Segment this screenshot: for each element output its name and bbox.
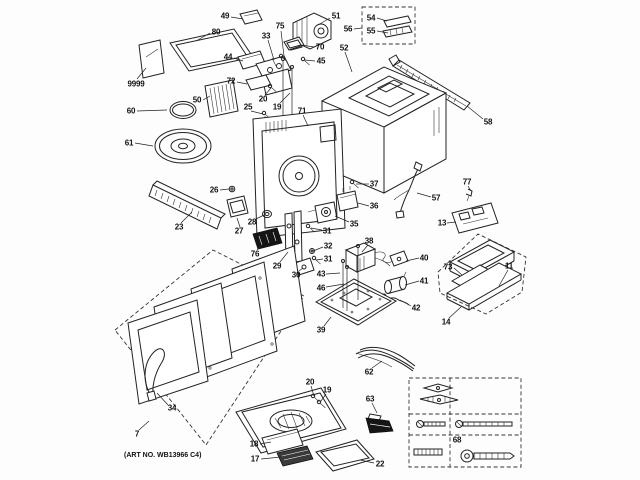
callout-77: 77 — [463, 178, 472, 187]
callout-71: 71 — [298, 107, 307, 116]
callout-7: 7 — [135, 430, 139, 439]
callout-46: 46 — [317, 284, 326, 293]
callout-50: 50 — [193, 96, 202, 105]
callout-54: 54 — [367, 14, 376, 23]
callout-42: 42 — [412, 304, 421, 313]
callout-30: 30 — [292, 271, 301, 280]
callout-14: 14 — [442, 318, 451, 327]
callout-55: 55 — [367, 27, 376, 36]
nut-26 — [229, 186, 235, 192]
frame-27 — [227, 196, 248, 217]
filter-tray-22 — [316, 440, 374, 471]
toggle-anchor-icon — [420, 384, 458, 404]
callout-45: 45 — [317, 57, 326, 66]
short-screw-icon — [417, 421, 446, 428]
callout-19-bottom: 19 — [323, 386, 332, 395]
callout-31-upper: 31 — [323, 227, 332, 236]
callout-19-top: 19 — [273, 103, 282, 112]
callout-36: 36 — [370, 202, 379, 211]
callout-20-top: 20 — [259, 95, 268, 104]
callout-43: 43 — [317, 270, 326, 279]
callout-32: 32 — [324, 242, 333, 251]
callout-60: 60 — [127, 107, 136, 116]
callout-51: 51 — [332, 12, 341, 21]
callout-70: 70 — [316, 43, 325, 52]
transformer-38 — [346, 243, 393, 272]
callout-80: 80 — [212, 28, 221, 37]
art-number: (ART NO. WB13966 C4) — [124, 452, 201, 459]
callout-29: 29 — [273, 262, 282, 271]
turntable-tray-61 — [155, 129, 211, 163]
callout-63: 63 — [366, 395, 375, 404]
callout-13: 13 — [438, 219, 447, 228]
callout-40: 40 — [420, 254, 429, 263]
callout-58: 58 — [484, 118, 493, 127]
callout-9999: 9999 — [128, 80, 145, 89]
callout-57: 57 — [432, 194, 441, 203]
callout-37: 37 — [370, 180, 379, 189]
control-board-13 — [452, 203, 498, 233]
cover-plate-49 — [240, 10, 262, 24]
callout-28: 28 — [248, 218, 257, 227]
wedge-63 — [366, 414, 393, 433]
vent-grille-50 — [205, 80, 238, 117]
callout-52: 52 — [340, 44, 349, 53]
long-screw-icon — [456, 421, 513, 428]
callout-68: 68 — [453, 436, 462, 445]
callout-73: 73 — [444, 263, 453, 272]
thread-strip-icon — [414, 449, 442, 455]
hardware-kit-68 — [409, 378, 521, 467]
callout-41: 41 — [420, 277, 429, 286]
callout-20-bottom: 20 — [306, 378, 315, 387]
callout-23: 23 — [175, 223, 184, 232]
callout-33: 33 — [262, 32, 271, 41]
callout-49: 49 — [221, 12, 230, 21]
callout-31-lower: 31 — [324, 255, 333, 264]
callout-35: 35 — [350, 220, 359, 229]
callout-18: 18 — [250, 440, 259, 449]
callout-34: 34 — [168, 404, 177, 413]
callout-27: 27 — [235, 227, 244, 236]
callout-56: 56 — [344, 25, 353, 34]
callout-38: 38 — [365, 237, 374, 246]
diagram-canvas — [0, 0, 640, 480]
capacitor-41 — [385, 272, 407, 294]
callout-25: 25 — [244, 103, 253, 112]
callout-62: 62 — [365, 368, 374, 377]
callout-11: 11 — [505, 262, 513, 271]
callout-72: 72 — [227, 77, 236, 86]
callout-44: 44 — [224, 53, 233, 62]
callout-61: 61 — [125, 139, 134, 148]
diagram-page: 49 80 9999 33 75 51 70 56 54 55 52 45 44… — [0, 0, 640, 480]
washer-screw-icon — [461, 450, 514, 462]
callout-26: 26 — [210, 186, 219, 195]
callout-76: 76 — [251, 250, 260, 259]
door-outer-frame — [128, 300, 208, 404]
callout-22: 22 — [376, 460, 385, 469]
callout-75: 75 — [276, 22, 285, 31]
callout-17: 17 — [251, 455, 260, 464]
bracket-40 — [390, 251, 408, 266]
callout-39: 39 — [317, 326, 326, 335]
